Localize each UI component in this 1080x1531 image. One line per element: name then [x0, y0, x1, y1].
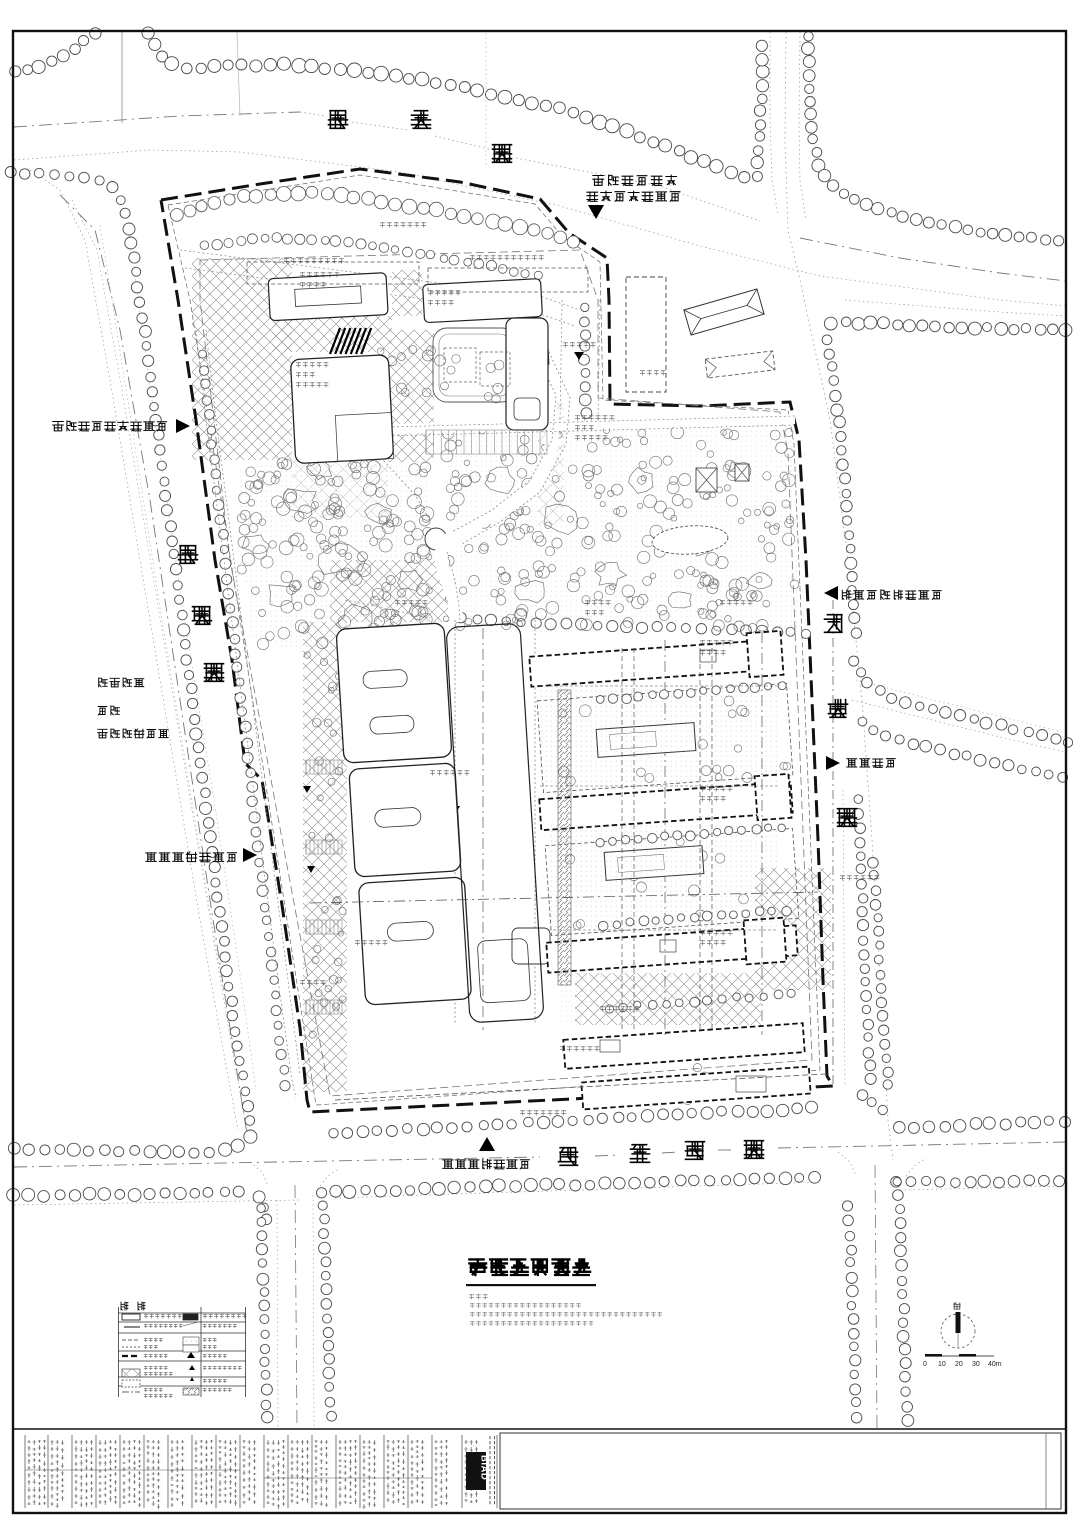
svg-text:0: 0 [923, 1361, 927, 1368]
svg-text:40m: 40m [988, 1361, 1002, 1368]
svg-text:30: 30 [972, 1361, 980, 1368]
svg-text:20: 20 [955, 1361, 963, 1368]
svg-text:BIAD: BIAD [479, 1455, 490, 1480]
svg-text:10: 10 [938, 1361, 946, 1368]
